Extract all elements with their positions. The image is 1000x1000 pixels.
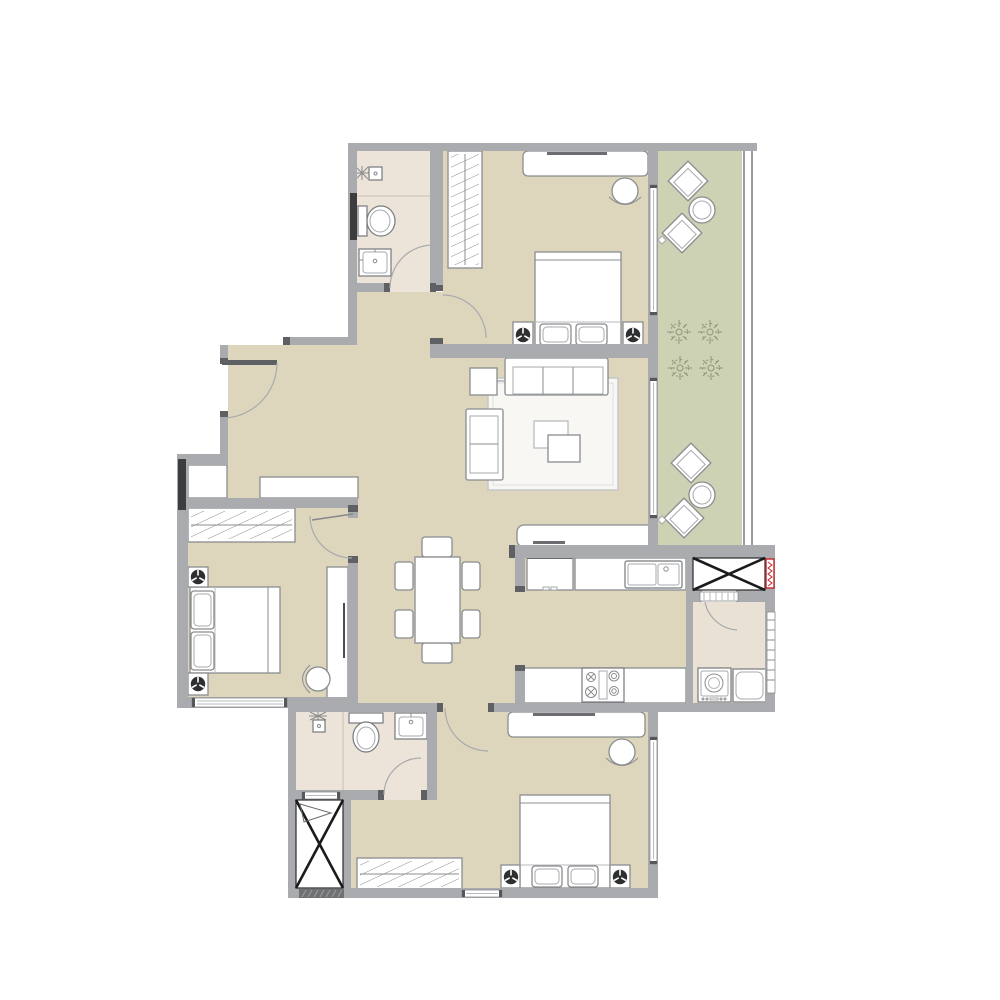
washing-machine xyxy=(698,668,731,702)
cooktop xyxy=(582,668,624,702)
table-lamp-icon xyxy=(626,328,640,342)
dining-chair-right-2 xyxy=(462,610,480,638)
jamb xyxy=(220,411,228,417)
jamb xyxy=(384,283,390,292)
balcony-door-window xyxy=(650,185,657,315)
entry-door-leaf xyxy=(222,360,277,365)
sofa-three-seat xyxy=(505,358,608,395)
wall-segment xyxy=(430,143,443,290)
balcony-railing xyxy=(742,151,756,545)
round-table xyxy=(689,482,715,508)
jamb xyxy=(515,665,525,671)
jamb xyxy=(515,586,525,592)
dining-chair-left-2 xyxy=(395,610,413,638)
wall-segment xyxy=(515,545,775,558)
pillow xyxy=(568,866,598,887)
wall-segment xyxy=(220,417,228,455)
entry-bench xyxy=(260,477,358,498)
floor-plan-canvas xyxy=(0,0,1000,1000)
jamb xyxy=(509,545,515,558)
floor-hall-strip xyxy=(357,292,443,345)
wall-segment xyxy=(348,143,757,151)
bedroom-left-window xyxy=(192,698,287,707)
window-dark-bathroom-top xyxy=(350,193,357,240)
coffee-table-front xyxy=(548,435,580,462)
living-window xyxy=(650,378,657,518)
desk-chair xyxy=(303,665,331,693)
vent-grille xyxy=(299,889,344,898)
desk xyxy=(327,567,348,703)
floor-plan-drawing xyxy=(0,0,1000,1000)
dining-chair-right-1 xyxy=(462,562,480,590)
wall-segment xyxy=(283,337,357,345)
wardrobe xyxy=(357,858,462,890)
kitchen-sink xyxy=(625,561,682,588)
pillow xyxy=(191,632,214,670)
wall-segment xyxy=(348,283,390,292)
laundry-sink xyxy=(733,669,766,702)
bedroom-bottom-window-2 xyxy=(462,890,502,897)
dining-chair-bottom xyxy=(422,643,452,663)
double-bed xyxy=(520,795,610,888)
wall-segment xyxy=(348,563,358,703)
wall-segment xyxy=(188,498,358,508)
jamb xyxy=(430,283,436,292)
round-table xyxy=(689,197,715,223)
pillow xyxy=(191,591,214,629)
jamb xyxy=(283,337,290,345)
wardrobe xyxy=(188,508,295,542)
table-lamp-icon xyxy=(191,677,205,691)
jamb xyxy=(430,338,443,344)
wall-segment xyxy=(348,292,357,337)
bathroom-bottom-vent-window xyxy=(302,792,340,799)
table-lamp-icon xyxy=(516,328,530,342)
entry-closet xyxy=(188,465,227,498)
window-dark-left xyxy=(178,459,186,510)
jamb xyxy=(348,505,358,512)
table-lamp-icon xyxy=(504,870,518,884)
vanity-sink xyxy=(359,249,391,276)
pillow xyxy=(540,324,571,345)
wall-segment xyxy=(343,800,351,890)
desk xyxy=(523,151,648,176)
wardrobe xyxy=(448,151,482,268)
dining-table xyxy=(415,557,460,643)
jamb xyxy=(378,790,384,800)
double-bed xyxy=(190,587,280,673)
fridge xyxy=(527,556,573,590)
bedroom-bottom-window xyxy=(650,737,657,864)
jamb xyxy=(421,790,427,800)
double-bed xyxy=(535,252,621,348)
side-table xyxy=(470,368,497,395)
jamb xyxy=(488,703,494,712)
wall-segment xyxy=(427,710,437,800)
pillow xyxy=(532,866,562,887)
desk xyxy=(508,712,645,737)
utility-window xyxy=(767,612,775,693)
wall-segment xyxy=(488,703,775,712)
table-lamp-icon xyxy=(191,570,205,584)
duct-shaft-top xyxy=(693,558,774,590)
wall-segment xyxy=(296,703,443,712)
riser-marker-red xyxy=(766,559,774,588)
duct-shaft-bottom xyxy=(296,800,344,898)
wall-segment xyxy=(430,344,658,358)
dining-chair-left-1 xyxy=(395,562,413,590)
jamb xyxy=(348,556,358,563)
wall-segment xyxy=(288,703,296,890)
sofa-two-seat xyxy=(466,409,503,480)
table-lamp-icon xyxy=(613,870,627,884)
wall-segment xyxy=(515,545,525,592)
pillow xyxy=(576,324,607,345)
dining-chair-top xyxy=(422,537,452,557)
vanity-sink xyxy=(395,713,427,739)
wall-segment xyxy=(686,558,693,703)
toilet xyxy=(358,206,395,236)
tv-cabinet xyxy=(517,525,657,547)
jamb xyxy=(437,703,443,712)
